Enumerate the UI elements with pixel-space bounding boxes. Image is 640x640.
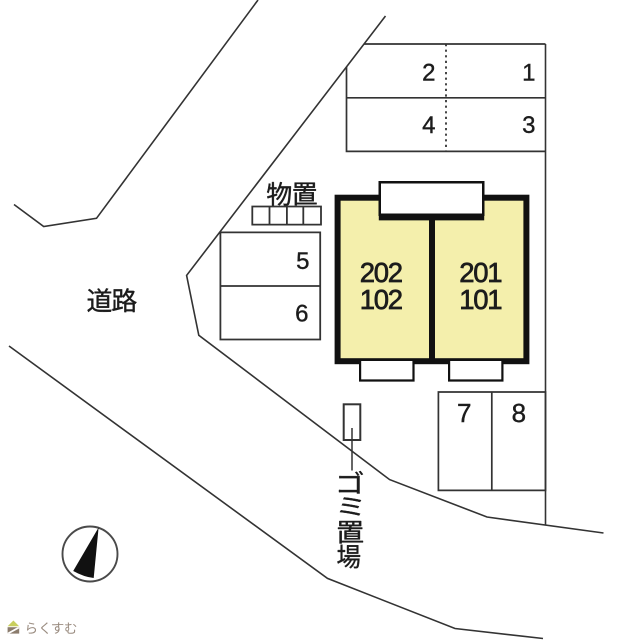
svg-text:3: 3 [522,112,535,139]
svg-text:101: 101 [459,284,501,315]
svg-text:102: 102 [360,284,402,315]
svg-text:2: 2 [422,59,435,86]
svg-text:7: 7 [457,398,471,428]
svg-text:5: 5 [296,248,309,275]
svg-text:1: 1 [522,59,535,86]
svg-text:6: 6 [295,300,308,327]
svg-text:8: 8 [512,398,526,428]
svg-text:4: 4 [422,112,435,139]
